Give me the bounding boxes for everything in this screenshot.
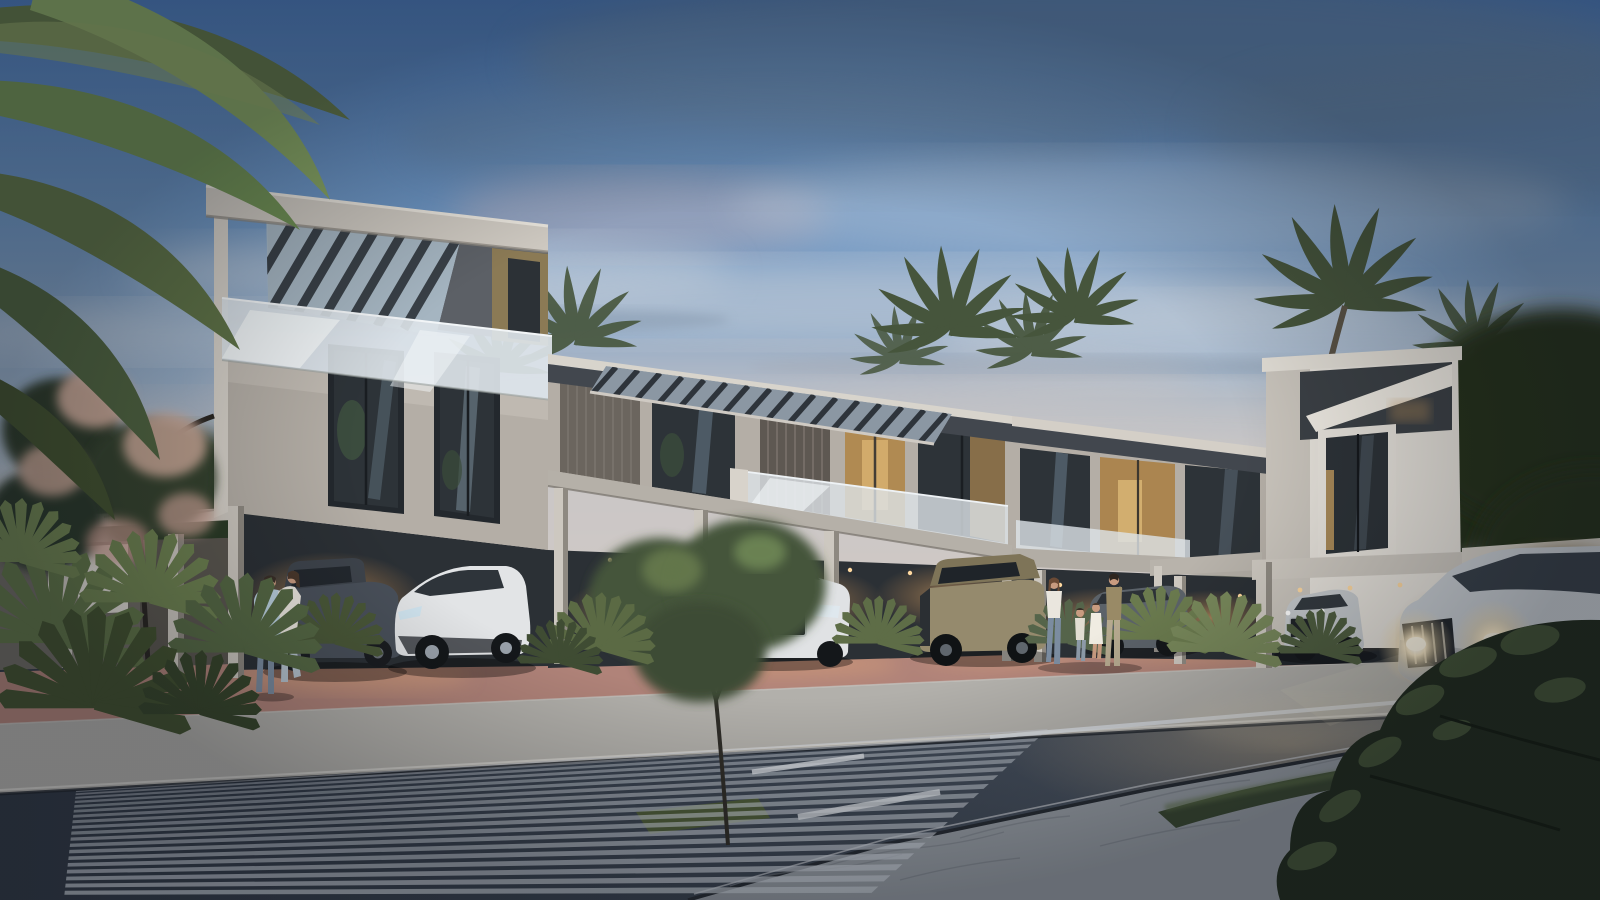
architectural-render-image (0, 0, 1600, 900)
vignette (0, 0, 1600, 900)
render-canvas (0, 0, 1600, 900)
